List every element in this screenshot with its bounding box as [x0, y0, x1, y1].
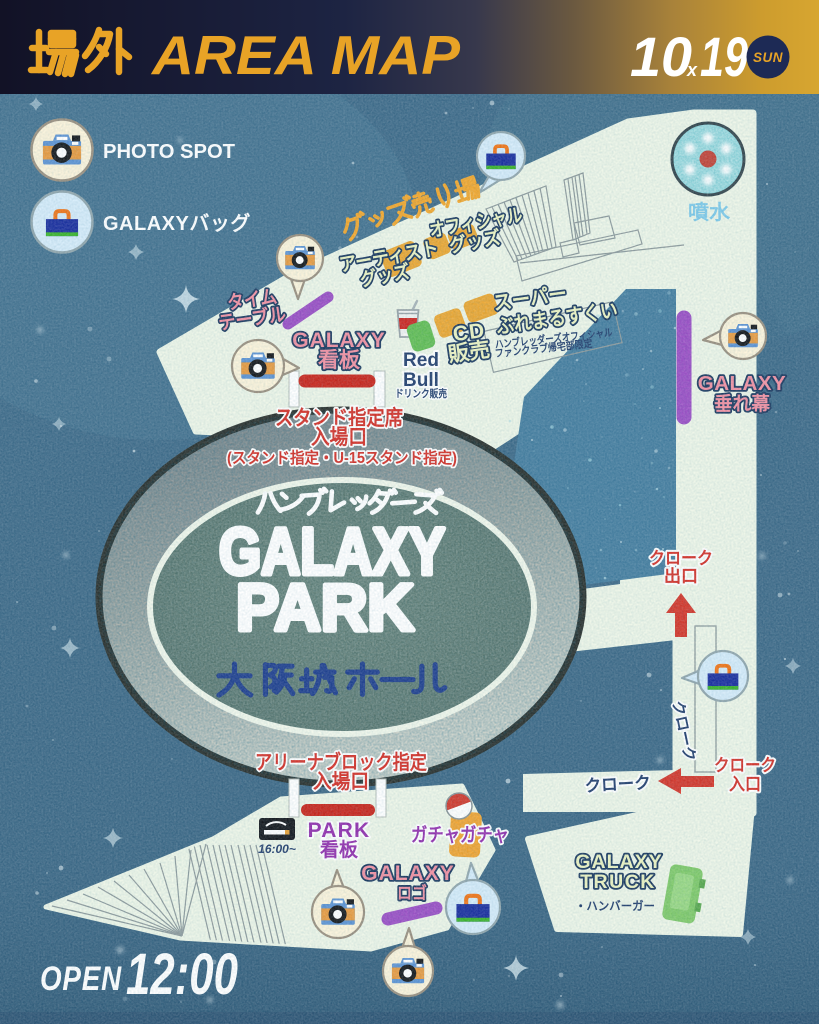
svg-text:SUN: SUN: [753, 50, 783, 65]
svg-text:10: 10: [630, 25, 692, 88]
svg-text:19: 19: [700, 25, 748, 88]
svg-text:x: x: [686, 60, 698, 80]
svg-text:AREA MAP: AREA MAP: [150, 24, 460, 86]
